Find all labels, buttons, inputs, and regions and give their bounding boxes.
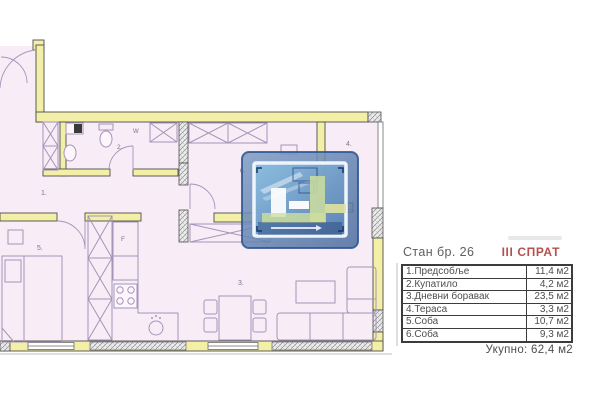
washing-machine-drum-icon	[74, 124, 82, 133]
stove-icon	[114, 284, 137, 308]
room-name: 5.Соба	[403, 316, 526, 328]
room-area-table: 1.Предсобље 11,4 м2 2.Купатило 4,2 м2 3.…	[401, 264, 573, 343]
room-area: 4,2 м2	[526, 279, 571, 291]
room-name: 3.Дневни боравак	[403, 291, 526, 303]
fridge-label: F	[121, 236, 125, 243]
room-number-bath: 2.	[117, 144, 123, 151]
room-area: 3,3 м2	[526, 304, 571, 316]
room-area: 10,7 м2	[526, 316, 571, 328]
table-row: 5.Соба 10,7 м2	[403, 315, 571, 328]
room-name: 1.Предсобље	[403, 266, 526, 278]
total-area: Укупно: 62,4 м2	[486, 344, 573, 356]
room-number-terrace: 4.	[346, 141, 352, 148]
table-row: 2.Купатило 4,2 м2	[403, 278, 571, 291]
table-row: 1.Предсобље 11,4 м2	[403, 266, 571, 278]
table-row: 4.Тераса 3,3 м2	[403, 303, 571, 316]
sink-icon	[64, 145, 76, 161]
washer-label: W	[133, 129, 139, 135]
room-name: 2.Купатило	[403, 279, 526, 291]
table-row: 3.Дневни боравак 23,5 м2	[403, 290, 571, 303]
floor-title: III СПРАТ	[502, 245, 560, 259]
floorplan-page: W 2. 1. 5.	[0, 0, 600, 400]
toilet-icon	[100, 131, 112, 147]
room-area: 11,4 м2	[526, 266, 571, 278]
room-name: 6.Соба	[403, 329, 526, 341]
room-area: 23,5 м2	[526, 291, 571, 303]
faded-watermark	[508, 236, 562, 240]
room-number-hall: 1.	[41, 190, 47, 197]
apartment-title: Стан бр. 26	[403, 245, 474, 259]
room-area: 9,3 м2	[526, 329, 571, 341]
room-name: 4.Тераса	[403, 304, 526, 316]
room-number-bedroom5: 5.	[37, 245, 43, 252]
table-row: 6.Соба 9,3 м2	[403, 328, 571, 341]
room-number-living: 3.	[238, 280, 244, 287]
highlight-overlay	[242, 152, 358, 248]
